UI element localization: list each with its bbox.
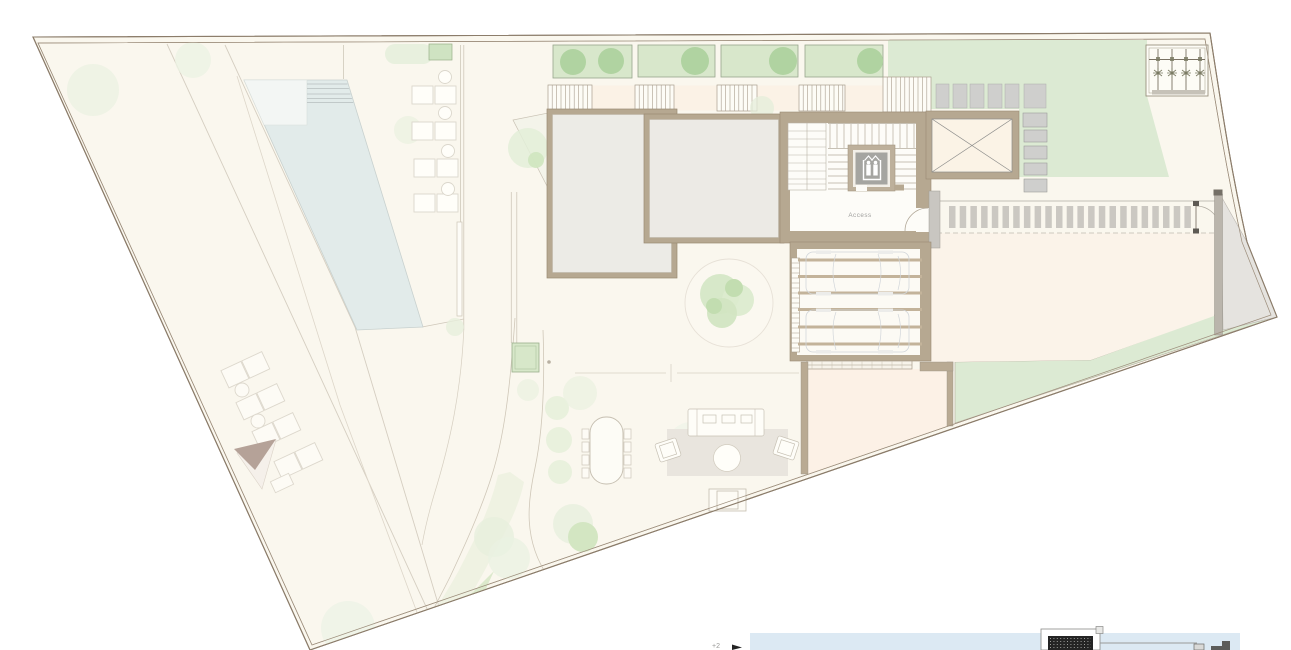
svg-text:+2: +2 bbox=[712, 643, 720, 650]
svg-text:Access: Access bbox=[848, 212, 871, 219]
